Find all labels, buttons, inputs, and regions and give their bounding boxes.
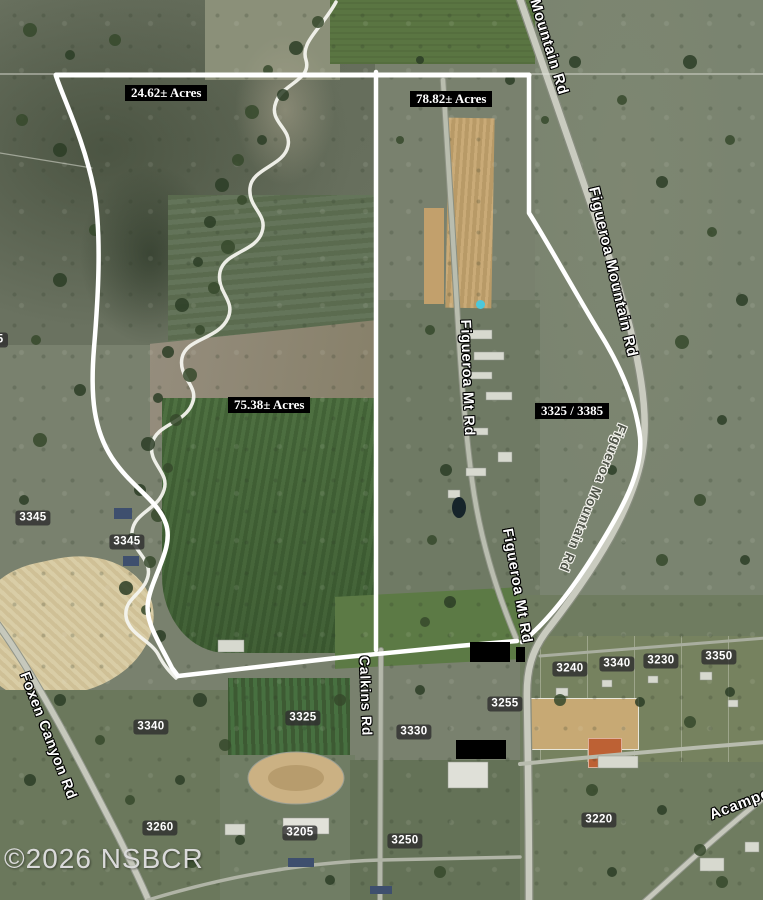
parcel-pair-label: 3325 / 3385 xyxy=(535,403,609,419)
acreage-label-78: 78.82± Acres xyxy=(410,91,492,107)
arena-inner xyxy=(268,765,324,791)
parcel-chip-3240: 3240 xyxy=(552,662,587,677)
parcel-chip-3345-b: 3345 xyxy=(109,535,144,550)
parcel-chip-edge-35: 35 xyxy=(0,333,8,348)
property-aerial-map: 24.62± Acres 78.82± Acres 75.38± Acres 3… xyxy=(0,0,763,900)
calkins-road xyxy=(380,650,381,900)
pool-dot xyxy=(476,300,485,309)
redaction-box-3 xyxy=(456,740,506,759)
acreage-label-24: 24.62± Acres xyxy=(125,85,207,101)
parcel-chip-3325: 3325 xyxy=(285,711,320,726)
parcel-chip-3250: 3250 xyxy=(387,834,422,849)
map-overlay-graphics xyxy=(0,0,763,900)
parcel-chip-3340-b: 3340 xyxy=(599,657,634,672)
redaction-box-1 xyxy=(470,642,510,662)
parcel-chip-3255: 3255 xyxy=(487,697,522,712)
acreage-label-75: 75.38± Acres xyxy=(228,397,310,413)
boundary-west-creek xyxy=(56,76,178,676)
parcel-chip-3220: 3220 xyxy=(581,813,616,828)
roads xyxy=(0,0,763,900)
parcel-chip-3205: 3205 xyxy=(282,826,317,841)
pond xyxy=(452,497,466,518)
road-label-calkins-rd: Calkins Rd xyxy=(357,656,376,737)
redaction-box-2 xyxy=(516,647,525,662)
parcel-chip-3345-a: 3345 xyxy=(15,511,50,526)
boundary-east xyxy=(522,75,640,642)
parcel-chip-3230: 3230 xyxy=(643,654,678,669)
copyright-watermark: ©2026 NSBCR xyxy=(4,843,204,875)
parcel-chip-3330: 3330 xyxy=(396,725,431,740)
road-bottom-right xyxy=(520,742,763,764)
blue-roof-buildings xyxy=(114,508,392,894)
parcel-chip-3260: 3260 xyxy=(142,821,177,836)
parcel-chip-3350: 3350 xyxy=(701,650,736,665)
parcel-chip-3340-a: 3340 xyxy=(133,720,168,735)
